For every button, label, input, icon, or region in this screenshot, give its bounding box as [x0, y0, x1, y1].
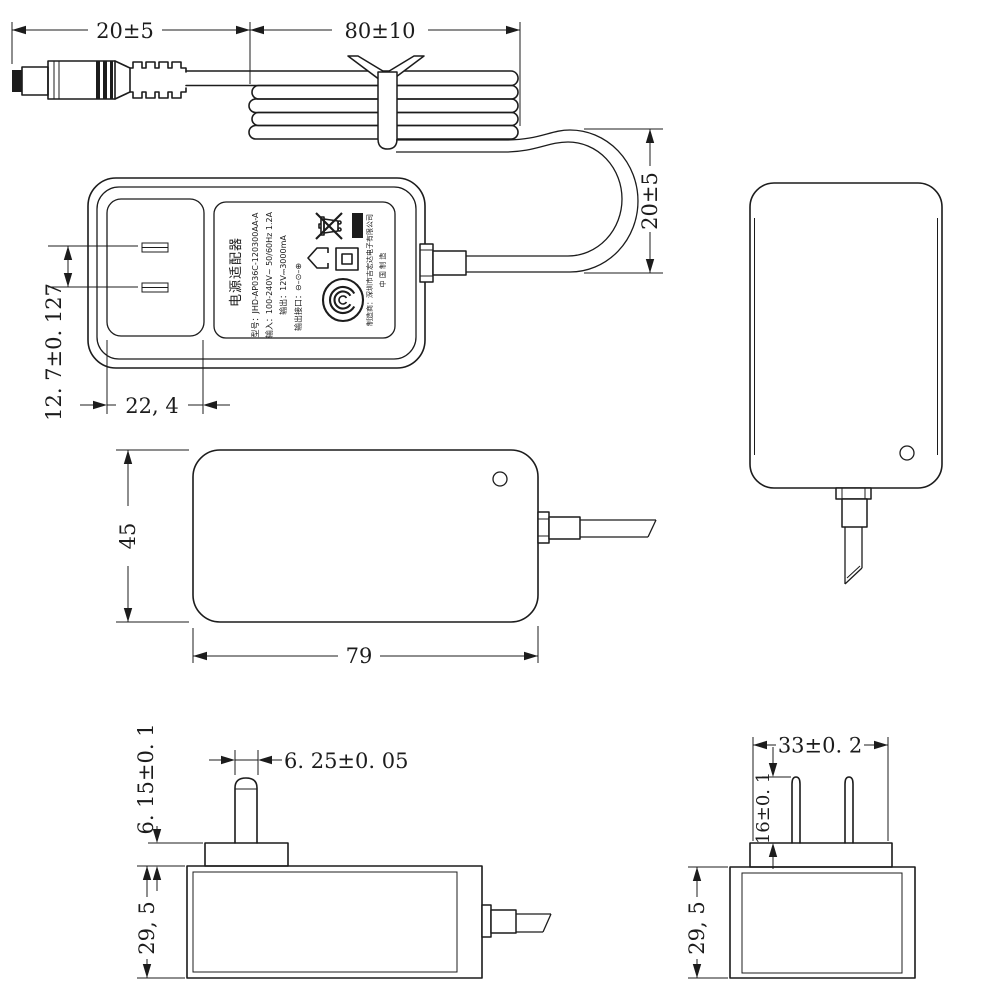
weee-black-bar	[352, 213, 363, 238]
end-body-outline	[730, 867, 915, 978]
view-back	[750, 183, 942, 584]
cable-tie	[348, 56, 424, 149]
dim-pin-length: 16±0. 1	[753, 747, 791, 869]
cable-coil	[186, 71, 518, 139]
dc-plug	[12, 61, 186, 99]
dim-body-height: 45	[116, 450, 189, 622]
label-manufacturer: 制造商：深圳市吉宏达电子有限公司	[365, 214, 374, 326]
view-front: 电源适配器 型号：JHD-AP036C-120300AA-A 输入：100-24…	[88, 178, 466, 368]
label-output: 输出：12V⎓3000mA	[278, 235, 288, 315]
dim-depth-side: 29, 5	[135, 866, 185, 978]
dim-blade-spacing: 12. 7±0. 127	[42, 246, 138, 421]
dim-body-length: 79	[193, 626, 538, 668]
dim-text-depth-end: 29, 5	[685, 901, 709, 954]
side-output-connector	[538, 512, 656, 543]
label-made-in: 中 国 制 造	[378, 253, 387, 288]
adapter-dimension-drawing: 电源适配器 型号：JHD-AP036C-120300AA-A 输入：100-24…	[0, 0, 1000, 1000]
pin-right	[845, 777, 853, 843]
back-output-connector	[836, 488, 871, 584]
screw-hole	[900, 446, 914, 460]
ccc-mark-icon	[323, 279, 363, 321]
weee-bin-icon	[316, 213, 342, 239]
pin-edge	[235, 778, 257, 843]
dim-depth-end: 29, 5	[685, 867, 728, 978]
dim-text-loop: 20±5	[638, 172, 662, 230]
dim-text-boss-width: 33±0. 2	[778, 734, 862, 758]
back-outline	[750, 183, 942, 488]
bottom-body-outline	[187, 866, 482, 978]
side-screw-hole	[493, 472, 507, 486]
plug-tip	[12, 70, 22, 92]
dim-text-body-height: 45	[116, 523, 140, 550]
class-ii-icon	[336, 248, 358, 270]
front-output-connector	[420, 244, 466, 282]
dim-text-pin-length: 16±0. 1	[753, 772, 774, 844]
view-bottom	[187, 778, 551, 978]
indoor-use-icon	[308, 248, 328, 268]
plug-blades	[142, 243, 168, 292]
side-outline	[193, 450, 538, 622]
dim-pin-width: 6. 25±0. 05	[209, 749, 408, 775]
dim-text-blade-spacing: 12. 7±0. 127	[42, 283, 66, 421]
label-model: 型号：JHD-AP036C-120300AA-A	[251, 212, 260, 338]
dim-text-boss-height: 6. 15±0. 1	[134, 723, 158, 834]
dim-text-coil: 80±10	[344, 19, 415, 43]
dim-text-pin-width: 6. 25±0. 05	[284, 749, 408, 773]
view-side	[193, 450, 656, 622]
dim-text-face-width: 22, 4	[125, 394, 178, 418]
pin-left	[792, 777, 800, 843]
product-label: 电源适配器 型号：JHD-AP036C-120300AA-A 输入：100-24…	[214, 202, 395, 338]
dim-text-depth-side: 29, 5	[135, 901, 159, 954]
dimension-annotations: 20±5 80±10 20±5 12. 7±	[12, 19, 888, 978]
label-title: 电源适配器	[229, 237, 244, 307]
dim-text-body-length: 79	[346, 644, 373, 668]
view-plug-and-cable	[12, 56, 638, 272]
plug-face	[107, 199, 204, 336]
label-output-port: 输出接口：⊖–⊙–⊕	[293, 263, 303, 331]
bottom-output-connector	[482, 905, 551, 937]
pedestal-side	[205, 843, 288, 866]
label-input: 输入：100-240V~ 50/60Hz 1.2A	[264, 211, 274, 338]
technical-drawing-page: 电源适配器 型号：JHD-AP036C-120300AA-A 输入：100-24…	[0, 0, 1000, 1000]
dim-text-plug-cable: 20±5	[96, 19, 154, 43]
